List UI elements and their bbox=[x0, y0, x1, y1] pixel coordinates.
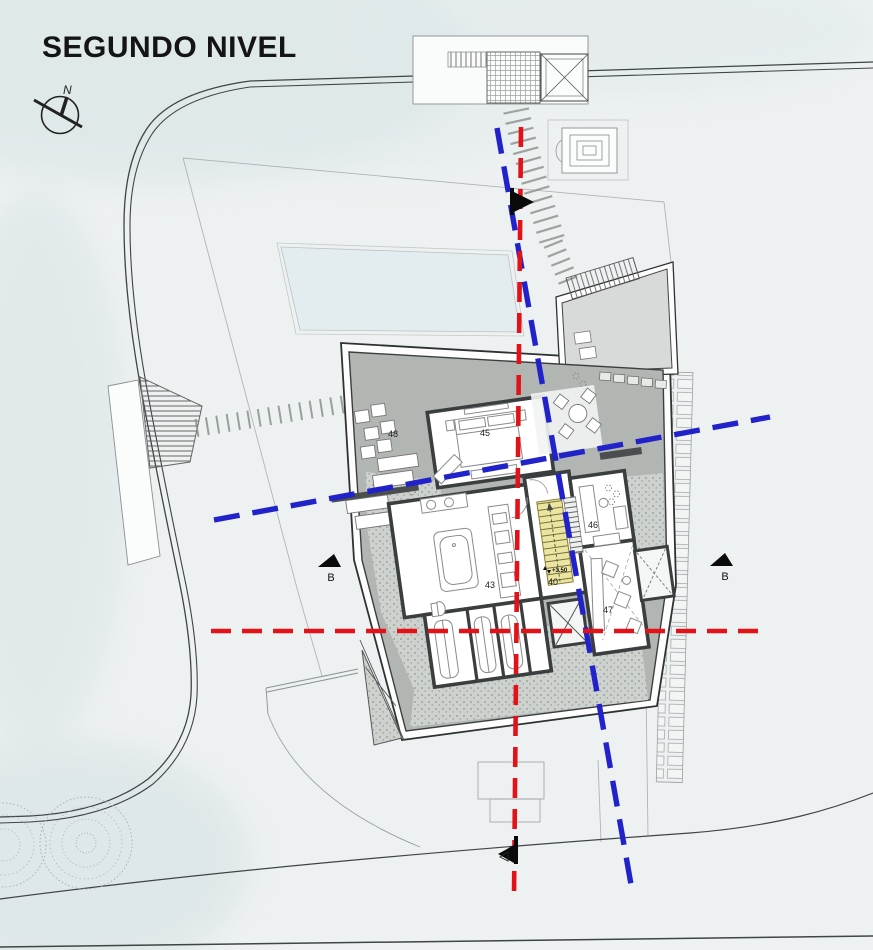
lower-roof-region bbox=[277, 243, 524, 336]
site-plan-page: 48 45 43 40 46 47 +3.50 B bbox=[0, 0, 873, 950]
site-plan-canvas: 48 45 43 40 46 47 +3.50 B bbox=[0, 0, 873, 950]
pyramid-roof bbox=[541, 54, 588, 101]
room-label-47: 47 bbox=[603, 605, 613, 615]
page-title: SEGUNDO NIVEL bbox=[42, 31, 297, 64]
north-label: N bbox=[63, 83, 72, 97]
section-label-b-left: B bbox=[327, 572, 334, 584]
room-label-48: 48 bbox=[388, 429, 398, 439]
room-label-40: 40 bbox=[548, 577, 558, 587]
room-label-43: 43 bbox=[485, 580, 495, 590]
level-marker-value: +3.50 bbox=[552, 568, 568, 574]
dining-set bbox=[531, 385, 605, 456]
room-label-45: 45 bbox=[480, 428, 490, 438]
section-label-b-right: B bbox=[721, 571, 728, 583]
room-label-46: 46 bbox=[588, 520, 598, 530]
elevator-shaft bbox=[635, 546, 675, 600]
pergola-grid-roof bbox=[487, 52, 540, 103]
